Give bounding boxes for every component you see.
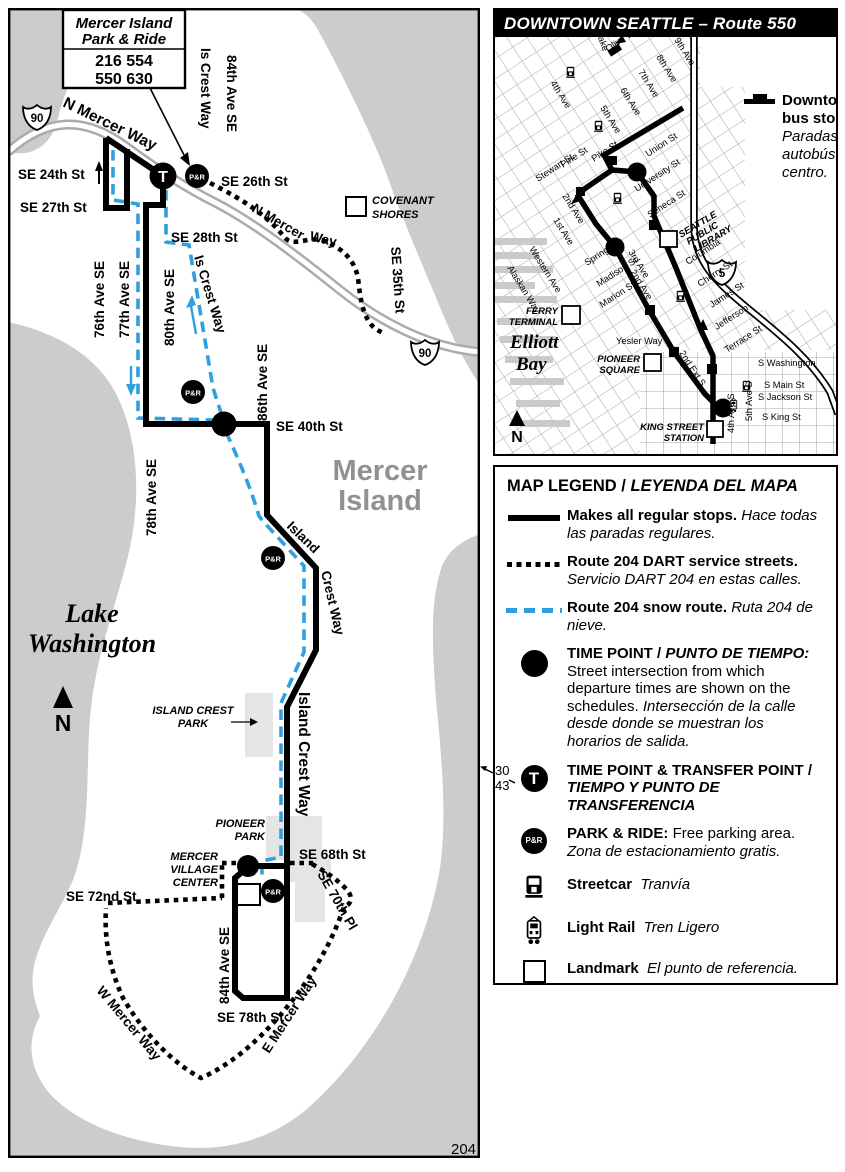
streetcar-es: Tranvía xyxy=(640,876,690,893)
street-label-se-28th: SE 28th St xyxy=(171,230,238,245)
parkride-icon-legend: P&R xyxy=(521,828,547,854)
label-ferry-1: FERRY xyxy=(526,306,560,317)
landmark-es: El punto de referencia. xyxy=(647,960,798,977)
lightrail-icon-legend xyxy=(523,916,545,946)
i90-label-west: 90 xyxy=(31,113,44,125)
streetcar-icon-legend xyxy=(523,874,545,902)
street-label-is-crest-north: Is Crest Way xyxy=(198,48,213,129)
label-4th-ave-s: 4th Ave S xyxy=(726,393,736,433)
dart-es: Servicio DART 204 en estas calles. xyxy=(567,571,802,588)
legend-dart: Route 204 DART service streets. Servicio… xyxy=(501,553,824,588)
transfer-point-label: T xyxy=(158,169,168,186)
i90-label-east: 90 xyxy=(419,348,432,360)
box-title-line1: Mercer Island xyxy=(76,15,174,32)
street-label-84th-ave-north: 84th Ave SE xyxy=(224,55,239,132)
box-routes-row2: 550 630 xyxy=(95,71,153,88)
street-label-77th-ave: 77th Ave SE xyxy=(117,261,132,338)
legend-timepoint: TIME POINT / PUNTO DE TIEMPO: Street int… xyxy=(501,645,824,750)
transfer-route-30: 30 xyxy=(495,763,509,778)
label-ferry-2: TERMINAL xyxy=(509,317,558,328)
snow-en: Route 204 snow route. xyxy=(567,599,731,616)
street-label-86th-ave: 86th Ave SE xyxy=(255,344,270,421)
covenant-shores-landmark xyxy=(346,197,366,216)
main-map-svg: T P&R P&R P&R P&R 90 90 Mercer Island Pa… xyxy=(8,8,480,1158)
north-label-main: N xyxy=(55,710,72,736)
map-legend-panel: MAP LEGEND / LEYENDA DEL MAPA Makes all … xyxy=(493,465,838,985)
label-5th-ave-s: 5th Ave S xyxy=(744,381,754,421)
label-pioneer-sq-1: PIONEER xyxy=(597,354,640,365)
box-routes-row1: 216 554 xyxy=(95,53,153,70)
street-label-se-27th: SE 27th St xyxy=(20,200,87,215)
mercer-village-1: MERCER xyxy=(170,851,218,863)
timepoint-es: PUNTO DE TIEMPO: xyxy=(665,645,809,662)
transfer-en: TIME POINT & TRANSFER POINT / xyxy=(567,762,812,779)
mercer-island-route-map: T P&R P&R P&R P&R 90 90 Mercer Island Pa… xyxy=(8,8,480,1158)
street-label-se-68th: SE 68th St xyxy=(299,847,366,862)
legend-title-es: LEYENDA DEL MAPA xyxy=(630,477,797,495)
street-label-84th-ave-south: 84th Ave SE xyxy=(217,927,232,1004)
legend-parkride: P&R PARK & RIDE: Free parking area. Zona… xyxy=(501,825,824,860)
island-crest-park-area xyxy=(245,693,273,757)
legend-title-en: MAP LEGEND / xyxy=(507,477,630,495)
transfer-route-43: 43 xyxy=(495,778,509,793)
stops-legend-2: bus stops. xyxy=(782,110,836,127)
legend-transfer-point: 30 43 T TIME POINT & TRANSFER POINT / TI… xyxy=(501,762,824,815)
label-yesler: Yesler Way xyxy=(616,336,663,346)
covenant-shores-1: COVENANT xyxy=(372,195,435,207)
street-label-80th-ave: 80th Ave SE xyxy=(162,269,177,346)
inset-map-svg: 5 4th Ave 5th Ave 6th Ave 7th Ave 8th Av… xyxy=(495,37,836,454)
island-crest-park-2: PARK xyxy=(178,718,209,730)
legend-landmark: Landmark El punto de referencia. xyxy=(501,957,824,983)
dart-en: Route 204 DART service streets. xyxy=(567,553,798,570)
box-title-line2: Park & Ride xyxy=(82,31,166,48)
street-label-se-40th: SE 40th St xyxy=(276,419,343,434)
mercer-island-label-1: Mercer xyxy=(332,455,427,487)
legend-snow-route: Route 204 snow route. Ruta 204 de nieve. xyxy=(501,599,824,634)
page-number: 204 xyxy=(451,1141,476,1158)
inset-north-label: N xyxy=(511,429,523,446)
transfer-point-icon-legend: T xyxy=(521,765,548,792)
mercer-village-2: VILLAGE xyxy=(170,864,218,876)
label-king-st-2: STATION xyxy=(664,433,705,444)
parkride-desc-es: Zona de estacionamiento gratis. xyxy=(567,843,780,860)
lake-label-2: Washington xyxy=(28,629,156,658)
street-label-island-crest-2: Island Crest Way xyxy=(295,692,312,817)
pioneer-square-landmark xyxy=(644,354,661,371)
parkride-label-island-crest: P&R xyxy=(265,555,281,564)
label-s-jackson: S Jackson St xyxy=(758,392,813,402)
parkride-desc-en: Free parking area. xyxy=(673,825,796,842)
timepoint-se68th xyxy=(237,855,259,877)
timepoint-circle-swatch xyxy=(521,650,548,677)
solid-line-swatch xyxy=(508,515,560,521)
legend-regular-stops: Makes all regular stops. Hace todas las … xyxy=(501,507,824,542)
inset-title: DOWNTOWN SEATTLE – Route 550 xyxy=(495,10,836,37)
landmark-icon-legend xyxy=(523,960,546,983)
label-elliott: Elliott xyxy=(509,332,559,353)
mercer-village-landmark xyxy=(237,884,260,905)
legend-streetcar: Streetcar Tranvía xyxy=(501,871,824,902)
street-label-se-72nd: SE 72nd St xyxy=(66,889,137,904)
label-pioneer-sq-2: SQUARE xyxy=(599,365,640,376)
regular-stops-en: Makes all regular stops. xyxy=(567,507,741,524)
parkride-callout-box: Mercer Island Park & Ride 216 554 550 63… xyxy=(63,10,185,88)
stops-legend-3: Paradas de xyxy=(782,128,836,145)
street-label-se-26th: SE 26th St xyxy=(221,174,288,189)
king-street-landmark xyxy=(707,421,723,437)
label-s-king: S King St xyxy=(762,412,801,422)
parkride-label-80th: P&R xyxy=(185,389,201,398)
lightrail-en: Light Rail xyxy=(567,919,635,936)
covenant-shores-2: SHORES xyxy=(372,209,419,221)
snow-dash-swatch xyxy=(506,608,562,613)
parkride-label-north: P&R xyxy=(189,173,205,182)
timepoint-se40th xyxy=(212,412,237,437)
library-landmark xyxy=(660,231,677,247)
label-s-washington: S Washington xyxy=(758,358,816,368)
landmark-en: Landmark xyxy=(567,960,639,977)
ferry-terminal-landmark xyxy=(562,306,580,324)
pioneer-park-1: PIONEER xyxy=(215,818,265,830)
label-bay: Bay xyxy=(515,354,547,375)
legend-lightrail: Light Rail Tren Ligero xyxy=(501,913,824,946)
stops-legend-4: autobús del xyxy=(782,146,836,163)
transfer-es: TIEMPO Y PUNTO DE TRANSFERENCIA xyxy=(567,779,720,814)
label-s-main: S Main St xyxy=(764,380,805,390)
parkride-en: PARK & RIDE: xyxy=(567,825,673,842)
mercer-village-3: CENTER xyxy=(173,877,218,889)
lake-label-1: Lake xyxy=(64,599,118,628)
parkride-label-south: P&R xyxy=(265,888,281,897)
stops-legend-1: Downtown xyxy=(782,92,836,109)
mercer-island-label-2: Island xyxy=(338,485,422,517)
legend-title: MAP LEGEND / LEYENDA DEL MAPA xyxy=(507,477,824,496)
street-label-se-24th: SE 24th St xyxy=(18,167,85,182)
stops-legend-5: centro. xyxy=(782,164,828,181)
lightrail-es: Tren Ligero xyxy=(644,919,720,936)
island-crest-park-1: ISLAND CREST xyxy=(152,705,235,717)
pioneer-park-2: PARK xyxy=(235,831,266,843)
timepoint-en: TIME POINT / xyxy=(567,645,665,662)
transfer-routes-graphic: 30 43 xyxy=(479,762,515,794)
street-label-76th-ave: 76th Ave SE xyxy=(92,261,107,338)
dotted-line-swatch xyxy=(507,562,561,567)
streetcar-en: Streetcar xyxy=(567,876,632,893)
street-label-78th-ave: 78th Ave SE xyxy=(144,459,159,536)
downtown-inset-panel: DOWNTOWN SEATTLE – Route 550 xyxy=(493,8,838,456)
label-king-st-1: KING STREET xyxy=(640,422,705,433)
